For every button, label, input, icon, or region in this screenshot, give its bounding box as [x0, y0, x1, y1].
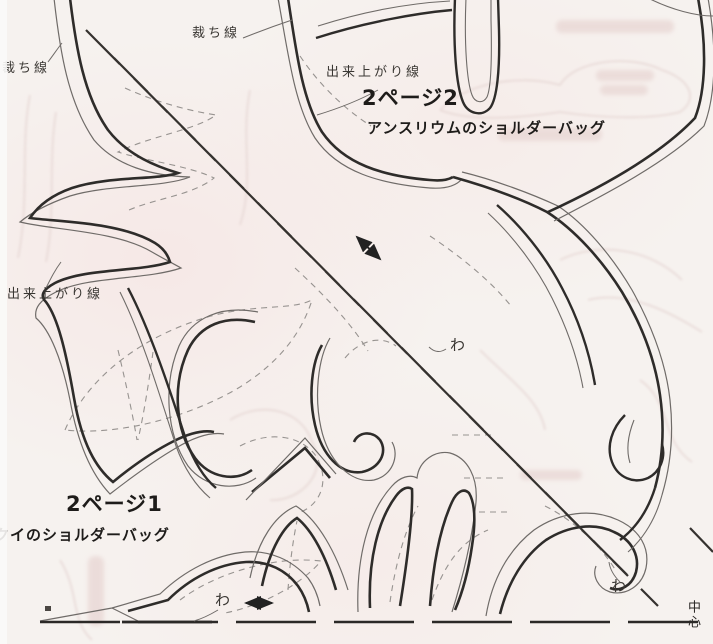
- scanned-pattern-sheet: 裁ち線 裁ち線 出来上がり線 出来上がり線 2ページ2 アンスリウムのショルダー…: [0, 0, 713, 644]
- finished-line-label-top: 出来上がり線: [326, 66, 422, 81]
- page-label-top-pattern: 2ページ2: [362, 86, 459, 110]
- corner-fold-segment: [690, 528, 713, 552]
- center-mark-label: 中心: [684, 600, 699, 630]
- bottom-right-strap-slot: [610, 415, 664, 480]
- cut-line-label-top: 裁ち線: [192, 27, 240, 42]
- cut-line-label-left: 裁ち線: [2, 62, 50, 77]
- title-top-pattern: アンスリウムのショルダーバッグ: [367, 120, 606, 137]
- page-label-bottom-pattern: 2ページ1: [66, 492, 163, 516]
- grain-arrow-icon: [357, 237, 380, 259]
- fold-mark-right: わ: [611, 578, 626, 595]
- top-strap-slot: [454, 0, 499, 113]
- finished-line-label-left: 出来上がり線: [7, 288, 103, 303]
- ink-speck: [45, 606, 51, 611]
- pattern-sheet-drawing: [0, 0, 713, 644]
- top-left-leaf-cut-line: [20, 0, 224, 494]
- fold-mark-bottom: わ: [215, 592, 230, 609]
- title-bottom-pattern: クイのショルダーバッグ: [0, 527, 170, 544]
- scan-page-edge: [0, 0, 7, 644]
- fold-mark-center: わ: [450, 337, 465, 354]
- bleedthrough-ghost: [18, 61, 702, 640]
- top-left-leaf-finished-line: [30, 0, 214, 482]
- top-left-leaf-pattern: [20, 0, 224, 494]
